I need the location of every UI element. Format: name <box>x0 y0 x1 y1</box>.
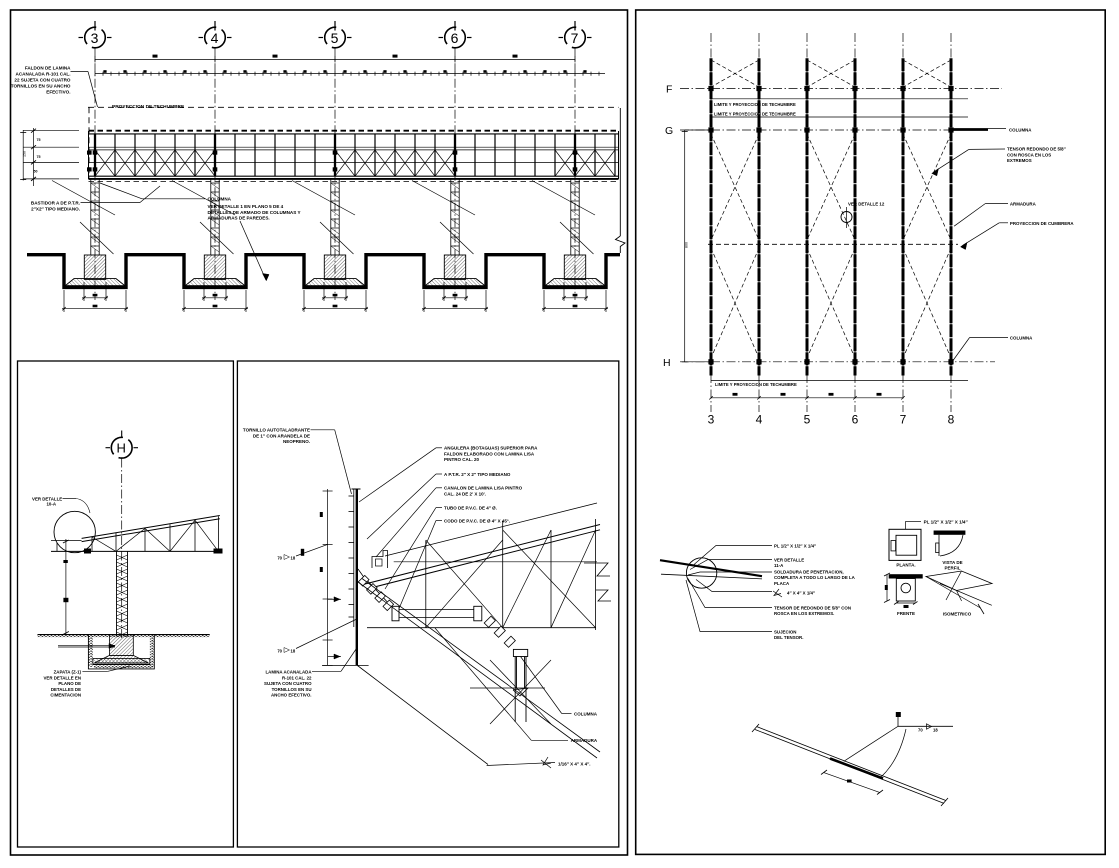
svg-text:ANCHO EFECTIVO.: ANCHO EFECTIVO. <box>271 693 312 698</box>
svg-text:10-A: 10-A <box>46 502 56 507</box>
svg-text:TENSOR DE REDONDO DE 5/8″ CON: TENSOR DE REDONDO DE 5/8″ CON <box>774 606 851 611</box>
svg-text:ARMADURA: ARMADURA <box>571 738 598 743</box>
svg-text:LIMITE Y PROYECCION DE TECHUMB: LIMITE Y PROYECCION DE TECHUMBRE <box>714 111 796 116</box>
svg-text:75: 75 <box>37 155 41 159</box>
svg-text:FALDON ELABORADO CON LAMINA LI: FALDON ELABORADO CON LAMINA LISA <box>444 451 535 456</box>
svg-text:ZAPATA (Z-1): ZAPATA (Z-1) <box>54 670 82 675</box>
svg-text:LIMITE Y PROYECCION DE TECHUMB: LIMITE Y PROYECCION DE TECHUMBRE <box>714 102 796 107</box>
svg-text:75: 75 <box>37 138 41 142</box>
svg-text:PL 1/2″ X 1/2″ X 1/4″: PL 1/2″ X 1/2″ X 1/4″ <box>924 520 969 525</box>
svg-text:F: F <box>666 84 672 96</box>
svg-text:70: 70 <box>918 728 923 733</box>
svg-text:22 SUJETA CON CUATRO: 22 SUJETA CON CUATRO <box>14 78 70 83</box>
svg-text:ISOMETRICO: ISOMETRICO <box>943 612 972 617</box>
svg-text:EFECTIVO.: EFECTIVO. <box>46 90 70 95</box>
svg-text:TENSOR REDONDO DE 5/8″: TENSOR REDONDO DE 5/8″ <box>1007 147 1067 152</box>
svg-text:VISTA DE: VISTA DE <box>942 560 962 565</box>
svg-text:ARMADURA: ARMADURA <box>1010 201 1037 206</box>
svg-text:ACANALADA R-101 CAL.: ACANALADA R-101 CAL. <box>16 72 71 77</box>
svg-text:4: 4 <box>756 413 763 427</box>
svg-text:CANALON DE LAMINA LISA PINTRO: CANALON DE LAMINA LISA PINTRO <box>444 486 523 491</box>
svg-text:CODO DE P.V.C. DE Ø 4″ X 45°.: CODO DE P.V.C. DE Ø 4″ X 45°. <box>444 519 510 524</box>
svg-text:G: G <box>665 125 673 137</box>
svg-text:LIMITE Y PROYECCION DE TECHUMB: LIMITE Y PROYECCION DE TECHUMBRE <box>715 382 797 387</box>
svg-text:FRENTE: FRENTE <box>897 611 915 616</box>
svg-text:800: 800 <box>685 242 689 248</box>
svg-text:18: 18 <box>291 556 296 561</box>
svg-text:1/16″ X 4″ X 4″.: 1/16″ X 4″ X 4″. <box>558 762 590 767</box>
svg-text:3: 3 <box>91 30 99 46</box>
svg-text:7: 7 <box>900 413 907 427</box>
svg-text:TORNILLO AUTOTALADRANTE: TORNILLO AUTOTALADRANTE <box>243 428 310 433</box>
svg-text:H: H <box>117 441 126 456</box>
svg-text:7: 7 <box>571 30 579 46</box>
svg-text:50: 50 <box>34 170 38 174</box>
svg-text:PLANO DE: PLANO DE <box>58 681 81 686</box>
svg-text:6: 6 <box>451 30 459 46</box>
svg-text:6: 6 <box>852 413 859 427</box>
svg-text:VER DETALLE EN: VER DETALLE EN <box>44 675 82 680</box>
svg-text:11-A: 11-A <box>774 563 784 568</box>
svg-text:EXTREMOS: EXTREMOS <box>1007 158 1032 163</box>
svg-text:COMPLETA A TODO LO LARGO DE LA: COMPLETA A TODO LO LARGO DE LA <box>774 575 856 580</box>
svg-text:18: 18 <box>933 728 938 733</box>
svg-text:PLACA: PLACA <box>774 581 790 586</box>
svg-text:SUJETA CON CUATRO: SUJETA CON CUATRO <box>264 681 312 686</box>
svg-text:ROSCA EN LOS EXTREMOS.: ROSCA EN LOS EXTREMOS. <box>774 611 834 616</box>
svg-text:CON ROSCA EN LOS: CON ROSCA EN LOS <box>1007 152 1051 157</box>
svg-text:BASTIDOR A DE P.T.R.: BASTIDOR A DE P.T.R. <box>31 201 80 206</box>
svg-text:CIMENTACION: CIMENTACION <box>50 693 81 698</box>
svg-text:SOLDADURA DE PENETRACION,: SOLDADURA DE PENETRACION, <box>774 570 844 575</box>
svg-text:DEL TENSOR.: DEL TENSOR. <box>774 635 803 640</box>
svg-text:SUJECION: SUJECION <box>774 630 796 635</box>
svg-text:A P.T.R. 2″ X 2″ TIPO MEDIANO: A P.T.R. 2″ X 2″ TIPO MEDIANO <box>444 472 511 477</box>
svg-text:VER DETALLE: VER DETALLE <box>774 558 804 563</box>
svg-text:DE 1″ CON ARANDELA DE: DE 1″ CON ARANDELA DE <box>253 433 310 438</box>
svg-text:5: 5 <box>804 413 811 427</box>
svg-text:COLUMNA: COLUMNA <box>574 711 598 716</box>
svg-text:PROYECCION DE CUMBRERA: PROYECCION DE CUMBRERA <box>1010 221 1074 226</box>
svg-text:4″ X 4″ X 1/4″: 4″ X 4″ X 1/4″ <box>787 591 816 596</box>
svg-text:ARMADURAS DE PAREDES.: ARMADURAS DE PAREDES. <box>208 216 270 221</box>
svg-text:DETALLES DE ARMADO DE COLUMNAS: DETALLES DE ARMADO DE COLUMNAS Y <box>208 210 301 215</box>
svg-text:VER DETALLE 12: VER DETALLE 12 <box>848 202 885 207</box>
svg-text:TORNILLOS EN SU ANCHO: TORNILLOS EN SU ANCHO <box>11 84 71 89</box>
svg-text:R-101 CAL. 22: R-101 CAL. 22 <box>282 675 312 680</box>
svg-text:70: 70 <box>277 556 282 561</box>
svg-text:2″X2″ TIPO MEDIANO.: 2″X2″ TIPO MEDIANO. <box>31 207 80 212</box>
svg-text:FALDON DE LAMINA: FALDON DE LAMINA <box>25 66 71 71</box>
svg-text:LAMINA ACANALADA: LAMINA ACANALADA <box>265 670 312 675</box>
svg-text:PERFIL: PERFIL <box>944 565 960 570</box>
svg-text:COLUMNA: COLUMNA <box>1010 335 1033 340</box>
svg-text:150: 150 <box>23 151 27 157</box>
svg-text:DETALLES DE: DETALLES DE <box>51 687 81 692</box>
svg-text:NEOPRENO.: NEOPRENO. <box>283 439 310 444</box>
svg-text:5: 5 <box>331 30 339 46</box>
svg-text:H: H <box>663 357 671 369</box>
svg-text:3: 3 <box>708 413 715 427</box>
svg-text:TUBO DE P.V.C. DE 4″ Ø.: TUBO DE P.V.C. DE 4″ Ø. <box>444 506 497 511</box>
svg-text:CAL. 24 DE 2' X 10'.: CAL. 24 DE 2' X 10'. <box>444 491 486 496</box>
svg-text:4: 4 <box>211 30 219 46</box>
svg-text:PLANTA.: PLANTA. <box>896 562 915 567</box>
svg-text:COLUMNA: COLUMNA <box>1009 128 1032 133</box>
svg-text:PL 1/2″ X 1/2″ X 1/4″: PL 1/2″ X 1/2″ X 1/4″ <box>774 544 817 549</box>
svg-text:70: 70 <box>277 649 282 654</box>
svg-text:8: 8 <box>948 413 955 427</box>
svg-text:ANGULERA (BOTAGUAS) SUPERIOR P: ANGULERA (BOTAGUAS) SUPERIOR PARA <box>444 446 538 451</box>
svg-text:PINTRO CAL. 20: PINTRO CAL. 20 <box>444 457 480 462</box>
svg-text:TORNILLOS EN SU: TORNILLOS EN SU <box>272 687 312 692</box>
svg-text:18: 18 <box>291 649 296 654</box>
